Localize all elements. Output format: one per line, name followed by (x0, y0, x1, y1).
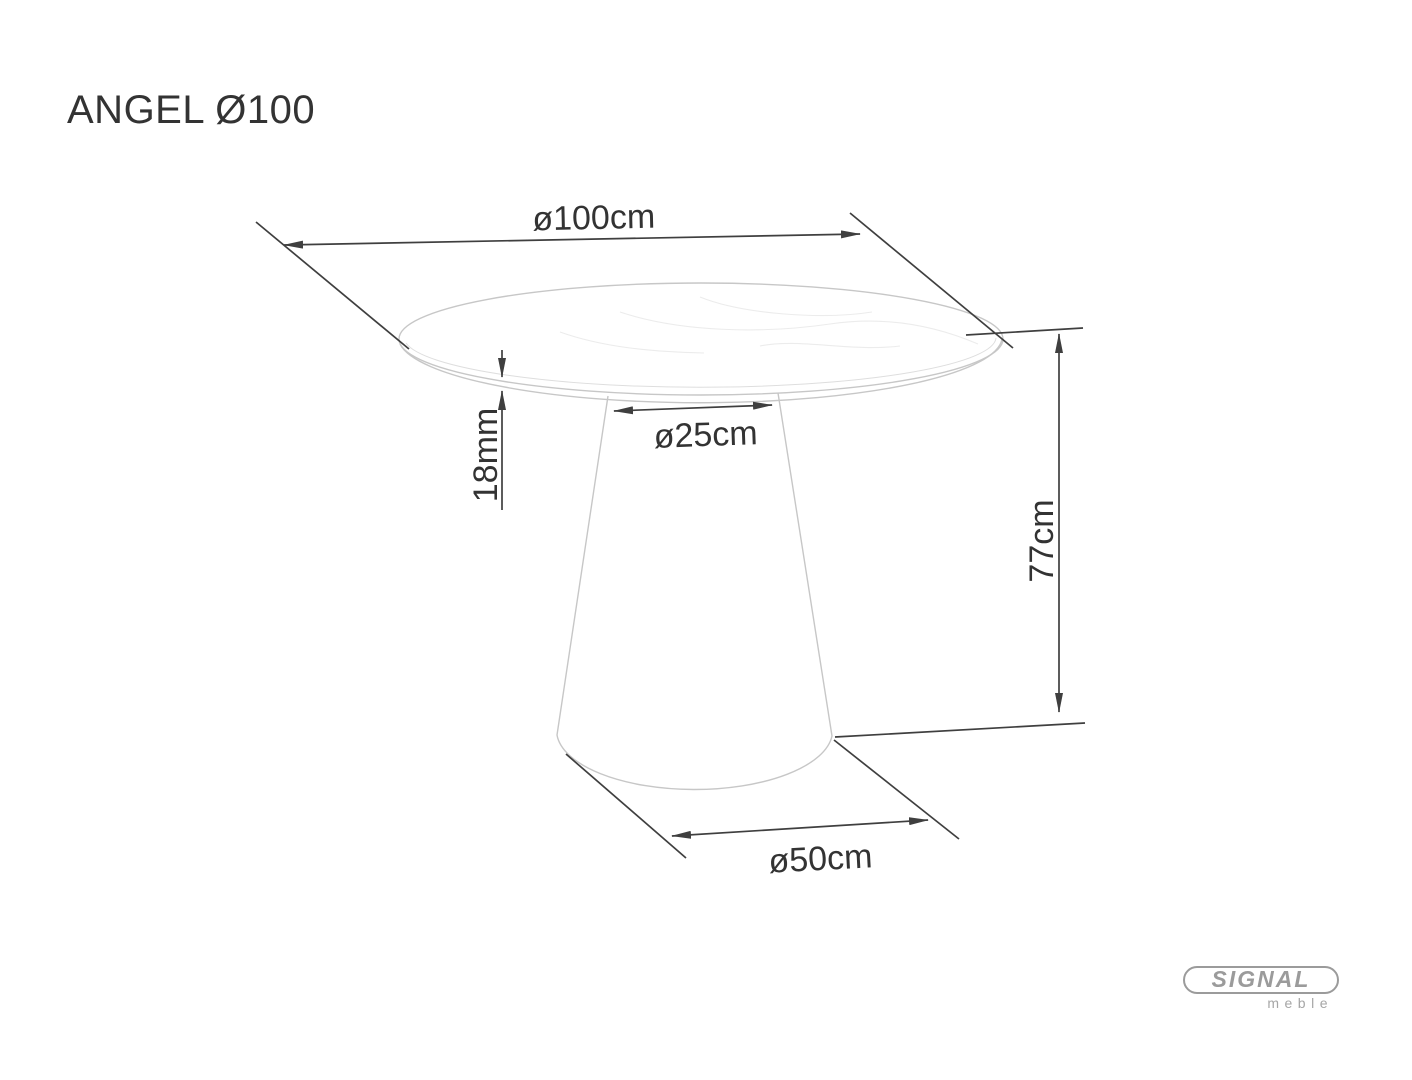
dim-height-ext-top (966, 328, 1083, 335)
dim-height: 77cm (835, 328, 1085, 737)
dim-base-diameter-label: ø50cm (768, 837, 874, 880)
table-drawing (399, 283, 1003, 790)
brand-logo-pill: SIGNAL (1183, 966, 1339, 994)
dim-top-diameter-ext-left (256, 222, 409, 349)
brand-logo: SIGNAL meble (1183, 966, 1339, 1011)
tabletop-outline (399, 283, 1003, 395)
marble-veins (560, 297, 978, 353)
dim-top-diameter: ø100cm (256, 198, 1013, 349)
dim-height-label: 77cm (1023, 499, 1061, 582)
dim-thickness-label: 18mm (467, 408, 505, 502)
tabletop-edge-band (400, 339, 1002, 403)
dim-height-ext-bottom (835, 723, 1085, 737)
brand-logo-subtitle: meble (1183, 995, 1339, 1011)
dim-column-diameter-label: ø25cm (653, 414, 758, 456)
dim-base-diameter-line (672, 820, 928, 836)
dim-top-diameter-ext-right (850, 213, 1013, 348)
diagram-page: ANGEL Ø100 (0, 0, 1412, 1080)
brand-logo-text: SIGNAL (1212, 968, 1311, 991)
dim-top-diameter-label: ø100cm (532, 198, 656, 239)
diagram-canvas: ø100cm 18mm ø25cm 77cm (0, 0, 1412, 1080)
